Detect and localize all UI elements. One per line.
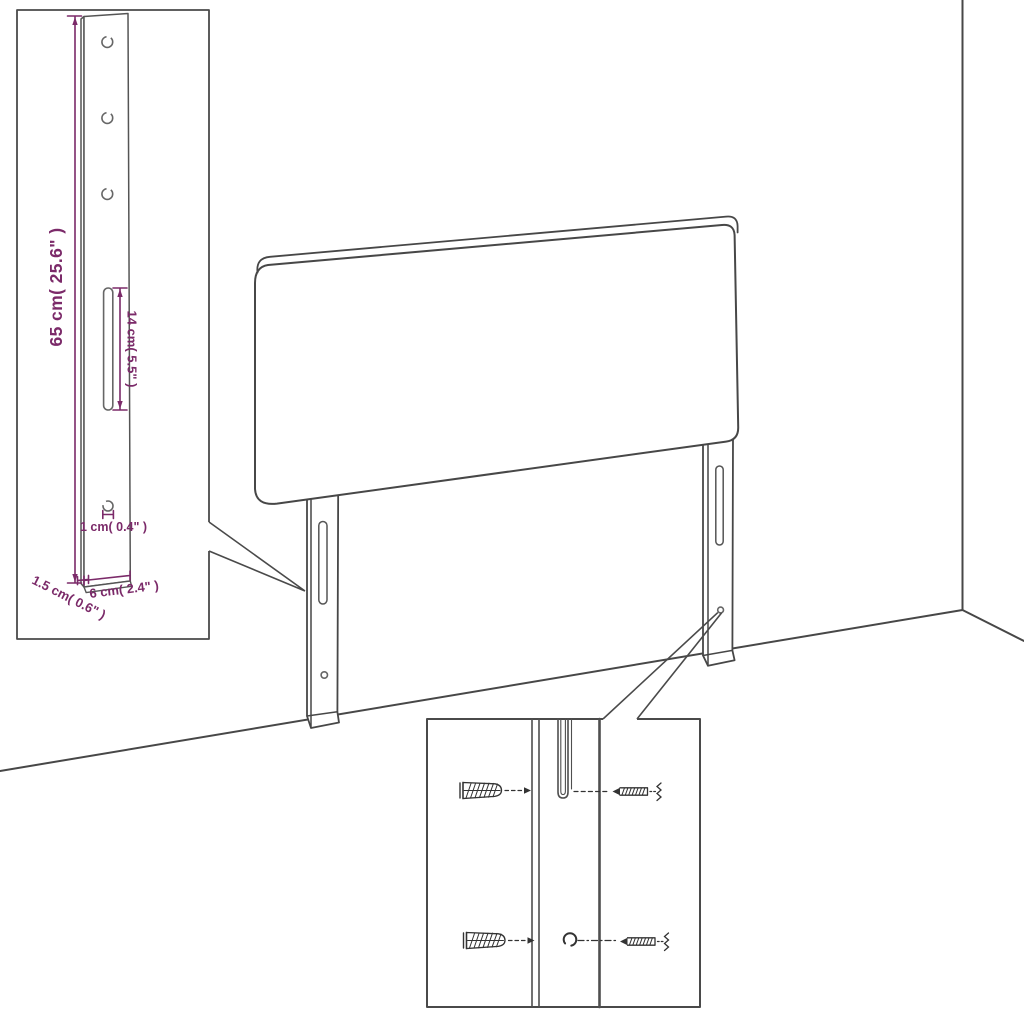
dimension-label-leg-height: 65 cm( 25.6" ) bbox=[46, 228, 66, 347]
leg-detail-inset: 65 cm( 25.6" ) 14 cm( 5.5" ) 1 cm( 0.4" … bbox=[17, 10, 209, 639]
mounting-bracket bbox=[81, 14, 132, 593]
callout-wedge-left bbox=[209, 522, 305, 591]
dimension-label-slot-length: 14 cm( 5.5" ) bbox=[125, 311, 140, 388]
headboard-dimension-diagram: 65 cm( 25.6" ) 14 cm( 5.5" ) 1 cm( 0.4" … bbox=[0, 0, 1024, 1024]
headboard-panel bbox=[255, 216, 738, 503]
hardware-detail-inset bbox=[427, 719, 700, 1007]
left-leg-slot bbox=[319, 522, 327, 605]
side-wall-floor-line bbox=[963, 610, 1024, 641]
left-leg bbox=[307, 484, 339, 728]
right-leg-slot bbox=[716, 466, 723, 545]
dimension-label-hole-diameter: 1 cm( 0.4" ) bbox=[80, 520, 147, 534]
